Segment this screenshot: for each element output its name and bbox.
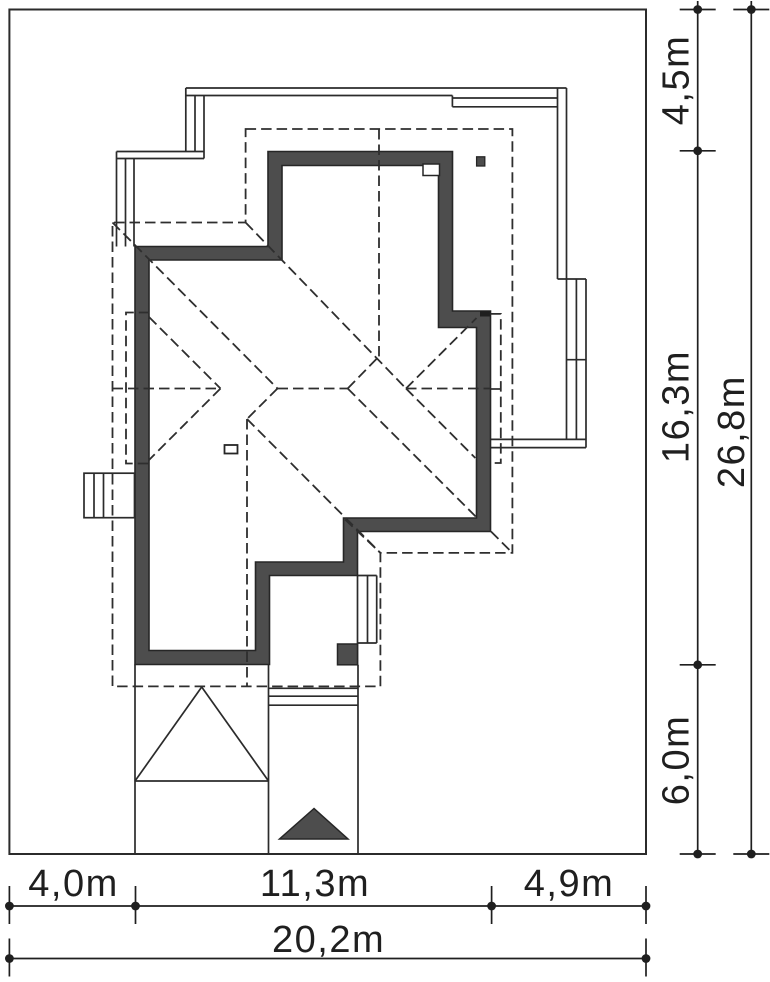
svg-text:6,0m: 6,0m <box>656 715 698 805</box>
svg-text:4,5m: 4,5m <box>656 35 698 125</box>
svg-text:16,3m: 16,3m <box>656 350 698 463</box>
svg-text:20,2m: 20,2m <box>272 919 385 961</box>
svg-text:11,3m: 11,3m <box>260 863 370 905</box>
svg-text:26,8m: 26,8m <box>711 375 753 488</box>
svg-text:4,0m: 4,0m <box>28 863 118 905</box>
svg-text:4,9m: 4,9m <box>524 863 614 905</box>
